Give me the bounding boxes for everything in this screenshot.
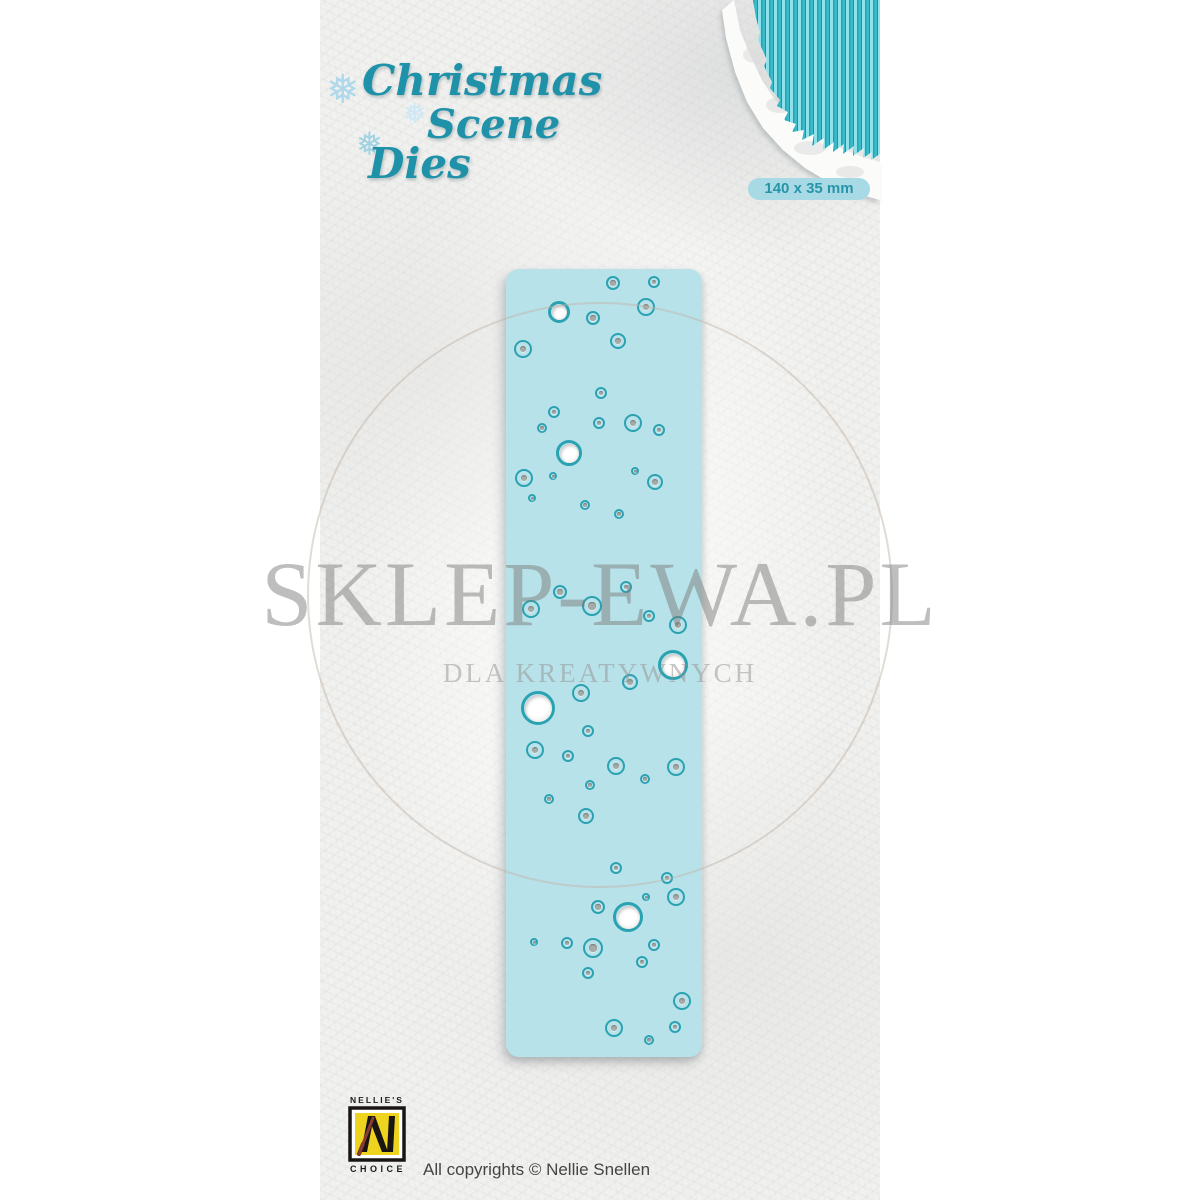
size-badge: 140 x 35 mm [748,178,870,200]
die-circle [642,893,650,901]
die-circle [582,967,594,979]
copyright-text: All copyrights © Nellie Snellen [423,1160,650,1180]
die-circle-pierce-dot [647,1038,651,1042]
die-circle [561,937,573,949]
die-circle-pierce-dot [673,894,679,900]
die-circle [605,1019,623,1037]
die-circle-pierce-dot [673,1025,677,1029]
die-circle [644,1035,654,1045]
die-circle [648,276,660,288]
die-circle [669,1021,681,1033]
brand-logo-line-1: Christmas [362,60,602,102]
die-circle-pierce-dot [589,944,596,951]
die-circle-pierce-dot [586,971,590,975]
snowflake-icon: ❅ [326,70,360,110]
die-circle [673,992,691,1010]
product-image: ❅ ❅ ❅ Christmas Scene Dies 140 x 35 mm S… [0,0,1200,1200]
die-circle-pierce-dot [640,960,644,964]
watermark-title: SKLEP-EWA.PL [0,548,1200,640]
die-circle [648,939,660,951]
die-circle [613,902,643,932]
die-circle [583,938,603,958]
die-circle-pierce-dot [645,896,648,899]
die-circle-hole [617,906,640,929]
die-circle [606,276,620,290]
die-circle [636,956,648,968]
nellies-choice-brand-bottom: CHOICE [347,1164,409,1174]
die-circle-pierce-dot [652,943,656,947]
watermark-subtitle: DLA KREATYWNYCH [0,660,1200,687]
die-circle-pierce-dot [565,941,569,945]
die-circle-pierce-dot [610,280,615,285]
nellies-choice-brand-top: NELLIE'S [347,1095,407,1105]
die-circle-pierce-dot [611,1025,617,1031]
die-circle-pierce-dot [652,280,656,284]
die-circle-pierce-dot [533,941,536,944]
die-circle [530,938,538,946]
die-circle [591,900,605,914]
die-circle-pierce-dot [679,998,685,1004]
die-circle-pierce-dot [595,904,600,909]
die-circle [667,888,685,906]
nellies-choice-monogram-icon [348,1106,406,1162]
brand-logo-line-3: Dies [368,143,471,185]
